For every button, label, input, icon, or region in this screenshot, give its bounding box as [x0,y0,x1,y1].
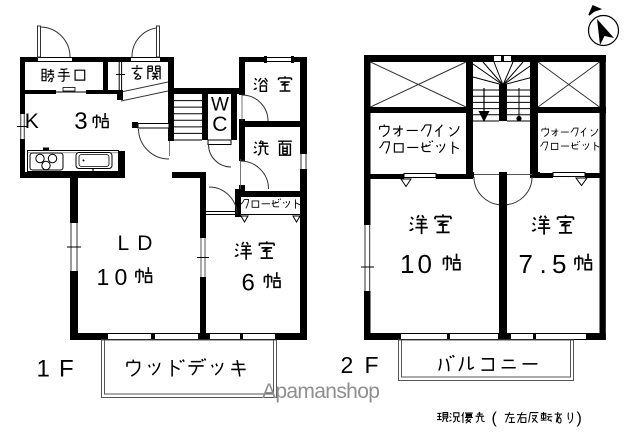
svg-text:1: 1 [37,356,50,383]
svg-text:6: 6 [242,270,255,297]
svg-text:Apamanshop: Apamanshop [262,380,379,403]
svg-text:0: 0 [418,249,432,279]
svg-text:D: D [137,232,152,255]
svg-text:K: K [25,110,39,133]
svg-text:(: ( [492,410,498,427]
svg-text:3: 3 [74,108,87,135]
svg-text:0: 0 [115,264,128,290]
svg-text:C: C [212,113,227,136]
svg-text:F: F [365,352,379,378]
svg-text:5: 5 [552,249,566,279]
svg-text:2: 2 [341,352,354,378]
svg-text:): ) [577,410,582,427]
svg-text:.: . [540,249,547,279]
svg-text:1: 1 [97,264,110,290]
svg-text:7: 7 [519,249,533,279]
svg-text:1: 1 [400,249,414,279]
svg-text:L: L [118,232,130,255]
svg-text:F: F [59,356,74,383]
